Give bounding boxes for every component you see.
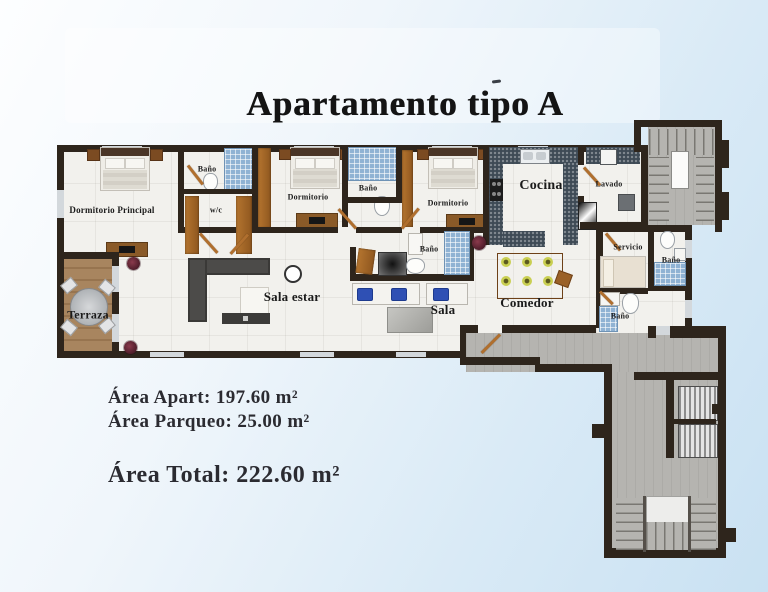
stair-opening (671, 151, 689, 189)
washing-machine (600, 149, 617, 165)
wall (634, 372, 718, 380)
tv-console (222, 313, 270, 324)
plate (522, 257, 532, 267)
sink-basin (523, 152, 533, 160)
tv (309, 217, 325, 224)
sofa-cushion (357, 288, 373, 301)
stove (490, 179, 503, 201)
wall (641, 145, 648, 229)
closet-wardrobe (185, 196, 199, 254)
pillow (105, 158, 125, 169)
toilet (406, 258, 425, 274)
room-label-bano-3: Baño (420, 245, 439, 254)
kitchen-sink (520, 149, 550, 164)
landing-opening (656, 326, 670, 335)
room-label-terraza: Terraza (67, 308, 109, 323)
bed-servicio (600, 256, 646, 288)
closet-wardrobe (258, 148, 271, 228)
nightstand (279, 149, 291, 160)
wall (648, 326, 656, 338)
sofa-cushion (433, 288, 449, 301)
shower-service-bath (654, 262, 686, 286)
wall-tab (592, 424, 608, 438)
nightstand (87, 149, 100, 161)
sink-basin (536, 152, 546, 160)
sofa-cushion (391, 288, 407, 301)
pillow (125, 158, 145, 169)
burner (492, 192, 496, 196)
toilet (660, 231, 675, 249)
area-total-text: Área Total: 222.60 m² (108, 462, 340, 489)
headboard (101, 148, 149, 156)
wall (466, 357, 540, 365)
blanket (431, 169, 475, 187)
tv (119, 246, 135, 253)
wall (258, 227, 338, 233)
plate (543, 276, 553, 286)
headboard (429, 148, 477, 156)
room-label-sala: Sala (431, 302, 456, 318)
plate (501, 257, 511, 267)
plate (501, 276, 511, 286)
kitchen-counter (503, 231, 545, 247)
page-title: Apartamento tipo A (185, 84, 625, 124)
floor-plan-page: Apartamento tipo A (0, 0, 768, 592)
stair-landing (646, 496, 690, 524)
blanket (293, 169, 337, 187)
plate (543, 257, 553, 267)
dresser-tv (296, 213, 338, 228)
wall (57, 252, 119, 259)
room-label-dormitorio-2: Dormitorio (288, 193, 329, 202)
room-label-bano-principal: Baño (198, 165, 217, 174)
room-label-comedor: Comedor (500, 295, 553, 311)
pillow (295, 158, 315, 169)
pillow (315, 158, 335, 169)
plate (522, 276, 532, 286)
wall-tab (722, 140, 729, 168)
stair-flight (696, 157, 714, 221)
room-label-servicio: Servicio (613, 243, 642, 252)
window (57, 190, 64, 218)
coffee-table (387, 307, 433, 333)
plant (124, 341, 137, 354)
nightstand (417, 149, 429, 160)
wall (634, 120, 641, 152)
wall-clock (284, 265, 302, 283)
burner (497, 192, 501, 196)
bath3-door-panel (355, 248, 375, 275)
stair-divider (643, 496, 646, 552)
window (685, 300, 692, 318)
stair-divider (688, 496, 691, 552)
wall (604, 372, 612, 556)
console-detail (243, 316, 248, 321)
shower-bath2 (348, 147, 402, 181)
wall (596, 225, 692, 232)
window (685, 240, 692, 258)
wall (715, 120, 722, 232)
room-label-bano-4: Baño (611, 312, 630, 321)
terrace-door-opening (112, 314, 119, 342)
stair-flight (646, 522, 688, 550)
wall (183, 189, 253, 194)
wall (666, 380, 674, 458)
garage-door (678, 424, 718, 458)
window (396, 352, 426, 357)
shower-bath3 (378, 252, 407, 276)
pillow (453, 158, 473, 169)
stair-flight (690, 498, 716, 550)
tv (459, 218, 475, 225)
blanket (103, 170, 147, 189)
stair-flight (649, 157, 669, 221)
headboard (291, 148, 339, 156)
plant (127, 257, 140, 270)
sofa-sala (352, 283, 420, 305)
room-label-cocina: Cocina (519, 178, 562, 194)
window (300, 352, 334, 357)
room-label-dormitorio-principal: Dormitorio Principal (69, 205, 154, 215)
bed-2 (290, 147, 340, 189)
nightstand (150, 149, 163, 161)
shower-tile-bath3 (444, 231, 470, 275)
room-label-bano-servicio: Baño (662, 256, 681, 265)
wall (350, 274, 474, 281)
room-label-walk-in-closet: w/c (210, 206, 222, 215)
room-label-dormitorio-3: Dormitorio (428, 199, 469, 208)
wall-tab (722, 192, 729, 220)
kitchen-counter (563, 162, 578, 245)
plant (472, 236, 486, 250)
wall (178, 145, 184, 231)
wall-tab (726, 528, 736, 542)
area-apart-text: Área Apart: 197.60 m² (108, 386, 340, 410)
stair-flight (616, 498, 643, 550)
room-label-lavado: Lavado (596, 180, 623, 189)
pillow (603, 259, 614, 287)
wall-tab (712, 404, 726, 414)
wall (342, 197, 402, 203)
wall (634, 120, 722, 127)
bed-3 (428, 147, 478, 189)
wall (718, 333, 726, 556)
shower-principal (224, 148, 254, 190)
wall (578, 145, 584, 165)
window (150, 352, 184, 357)
sectional-sofa (188, 258, 207, 322)
wall (535, 364, 612, 372)
room-label-sala-estar: Sala estar (264, 289, 321, 305)
pillow (433, 158, 453, 169)
area-summary: Área Apart: 197.60 m² Área Parqueo: 25.0… (108, 386, 340, 489)
bed-principal (100, 147, 150, 191)
wall (356, 227, 402, 233)
area-parqueo-text: Área Parqueo: 25.00 m² (108, 410, 340, 434)
room-label-bano-2: Baño (359, 184, 378, 193)
laundry-appliance (618, 194, 635, 211)
burner (497, 182, 501, 186)
burner (492, 182, 496, 186)
